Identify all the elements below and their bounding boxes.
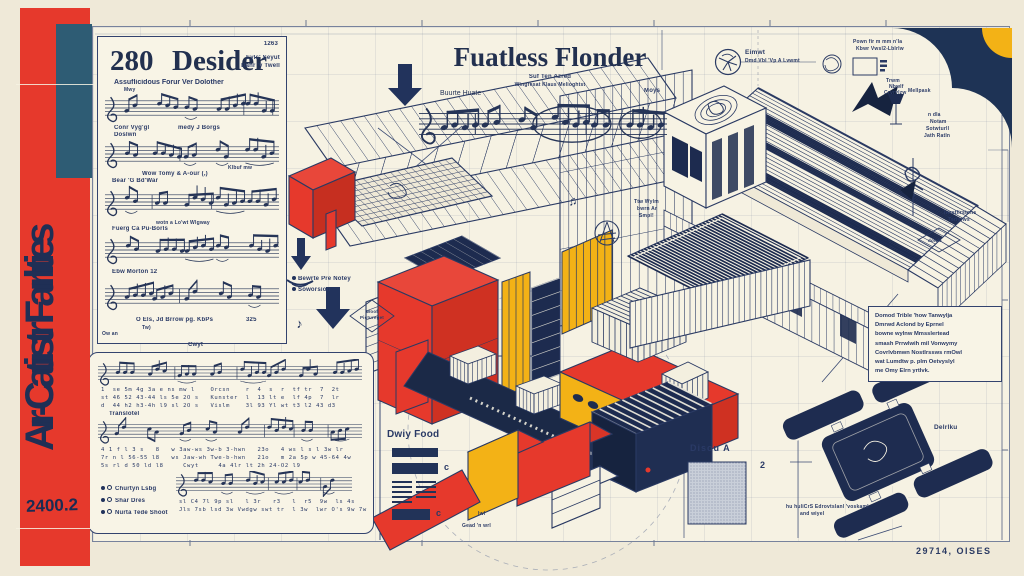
roof-note: Smpl! (639, 213, 654, 219)
byline: Eyls' Seyut (246, 55, 280, 62)
subtitle: Assuflicidous Forur Ver Dolother (114, 79, 224, 87)
detail-line: Domod Trible 'how Tanwylja (875, 312, 995, 321)
stave-annotation: Klbuf mw (228, 165, 252, 171)
music-staff (175, 471, 353, 497)
scribble-note: Jath Ratln (924, 133, 950, 139)
banner-code: 2400.2 (26, 495, 79, 517)
lyric-row: 4 1 f l 3 s 8 w 3aw-ws 3w-b 3-hwn 23o 4 … (101, 447, 344, 453)
banner-title: Aır-Catiıstr Faırlıties (18, 150, 88, 530)
detail-line: wat Lumdtw p. plm Oetvyslyl (875, 358, 995, 367)
stave-annotation: Doslwn (114, 132, 137, 139)
music-panel-bottom: Translotel 1 se 5m 4g 3a e ns mw l Orcsn… (88, 352, 374, 534)
lyric-row: 5s rl d 50 ld l8 Cwyt 4a 4lr lt 2h 24-O2… (101, 463, 300, 469)
stave-annotation: Wow Tomy & A-our (,) (142, 171, 208, 178)
stave-annotation: O Els, Jd Brrow pg. KbPs (136, 317, 213, 324)
music-staff (104, 137, 280, 171)
main-title: Fuatless Flonder (415, 42, 685, 73)
bullet-icon (101, 510, 105, 514)
stave-annotation: Conr Vyg'gl (114, 125, 149, 132)
poster-canvas: Aır-Catiıstr Faırlıties 2400.2 1263 280 … (0, 0, 1024, 576)
lyric-row: sl C4 7l 9p sl l 3r r3 l r5 9w ls 4s (179, 499, 355, 505)
device-label: Delrlku (934, 424, 957, 431)
legend-bar (392, 463, 438, 474)
scribble-note: Mellpask (908, 88, 931, 94)
detail-line: Covrlvbmwn Nostlrssws rmOwl (875, 349, 995, 358)
sheet-footer-code: 29714, OISES (916, 546, 992, 556)
scribble-note: Notam (930, 119, 947, 125)
stave-annotation: Bear 'G Bd'War (112, 178, 158, 185)
install-note: Iwrstlirstons (944, 210, 976, 216)
music-staff (97, 417, 363, 445)
ring-icon (107, 509, 112, 514)
stave-annotation: Ebw Morton 12 (112, 269, 157, 276)
diamond-label: dowle (928, 237, 942, 244)
legend-bar (392, 509, 430, 520)
bars-label: Dwiy Food (387, 429, 439, 440)
bullet-icon (292, 287, 296, 291)
scribble-note: Gead 'n wrl (462, 523, 491, 529)
detail-line: bowne wylnw Mmsslertead (875, 330, 995, 339)
corner-note: Kbwr Vwsl2-Lblrlw (856, 46, 904, 52)
byline: Danr 'y Twell (241, 63, 280, 70)
banner-tick (16, 528, 94, 529)
detail-line: Dmrwd Aclond by Eprnel (875, 321, 995, 330)
music-staff (104, 91, 280, 125)
detail-line: smash Prrwlwih mil Vonwymy (875, 340, 995, 349)
detail-text-box: Domod Trible 'how Tanwylja Dmrwd Aclond … (868, 306, 1002, 382)
banner-tick (16, 84, 94, 85)
stave-annotation: Ow an (102, 331, 118, 337)
swatch-number: 2 (760, 462, 765, 469)
stave-annotation: Tw) (142, 325, 151, 331)
swatch-label: Disou A (690, 445, 731, 452)
diamond-label: WoofPictureget (352, 309, 392, 320)
corner-note: Pown fir m mm n'la (853, 39, 902, 45)
detail-line: me Omy Elrn yrtlvk. (875, 367, 995, 376)
install-note: Tsrlvrws (948, 217, 970, 223)
stave-annotation: medy J Borgs (178, 125, 220, 132)
legend-item: Nurta Tede Shoot (101, 501, 168, 519)
music-panel-280: 1263 280 Desider Eyls' Seyut Danr 'y Twe… (97, 36, 287, 344)
music-staff (418, 98, 668, 150)
lyric-row: 1 se 5m 4g 3a e ns mw l Orcsn r 4 s r tf… (101, 387, 340, 393)
main-subtitle: Suf Ten Azred (415, 74, 685, 81)
lyric-row: st 46 52 43-44 ls 5e 2O s Kunster l 13 l… (101, 395, 340, 401)
device-caption: hu huliCrS Edrovtslanl 'voskaml (786, 504, 869, 510)
stave-annotation: 325 (246, 317, 257, 324)
lyric-row: Jls 7sb lsd 3w Vwdgw swt tr l 3w lwr O's… (179, 507, 367, 513)
bar-mark: c (444, 464, 449, 471)
roof-note: bwrn Ar (637, 206, 657, 212)
symbol-label: Dmd Vbl 'Vp A Lvwmt (745, 58, 800, 64)
music-staff (104, 279, 280, 313)
stave-annotation: Moys (644, 88, 660, 95)
scribble-note: Crvrvlzw (884, 90, 906, 96)
roof-note: Ttw Wylm (634, 199, 659, 205)
scribble-note: lwl (478, 511, 485, 517)
machine-legend-item: Soworsion (292, 278, 330, 296)
scribble-note: n dla (928, 112, 941, 118)
symbol-label: Eimwt (745, 49, 765, 56)
stave-annotation: Fuerg Ca Pu-Borls (112, 226, 168, 233)
tempo-marking: Buurte Huate (440, 90, 481, 98)
lyric-row: 7r n l 56-55 l8 ws Jaw-wh Twe-b-hwn 21o … (101, 455, 351, 461)
bar-mark: c (436, 510, 441, 517)
stave-annotation: Translotel (109, 411, 139, 418)
piece-number: 280 (110, 45, 154, 78)
scribble-note: Sotwturll (926, 126, 949, 132)
device-caption: and wiyel (800, 511, 824, 517)
music-staff (104, 185, 280, 219)
stave-annotation: Mwy (124, 87, 135, 93)
music-staff (97, 359, 363, 387)
music-staff (104, 233, 280, 267)
lyric-row: d 44 h2 h3-4h l9 sl 2O s Vislm 3l 93 Yl … (101, 403, 336, 409)
legend-bar (392, 448, 438, 457)
stave-annotation: Cwyt (188, 342, 203, 349)
